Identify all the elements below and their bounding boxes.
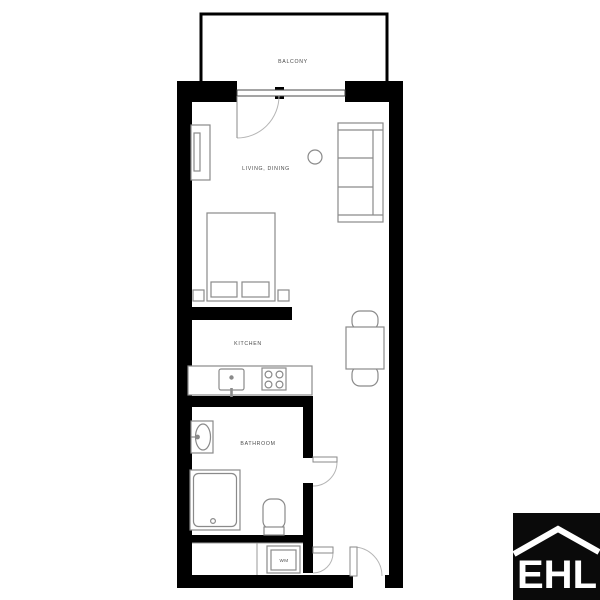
plant-circle [308,150,322,164]
wall-hall-left [303,543,313,573]
floor-plan-page: BALCONY LIVING, DINING KITCHEN BATHROOM … [0,0,600,600]
bath-sink-tap-dot [196,435,200,439]
furniture [188,123,384,573]
sink-dot [230,376,233,379]
wall-bathroom-right-upper [303,396,313,458]
label-kitchen: KITCHEN [234,341,262,347]
wall-bathroom-right-lower [303,483,313,535]
kitchen-counter [188,366,312,395]
wall-bottom-left [177,575,353,588]
wall-bathroom-bottom [180,535,313,543]
bathroom-door-arc [313,462,337,486]
label-balcony: BALCONY [278,59,308,65]
floor-plan-svg: BALCONY LIVING, DINING KITCHEN BATHROOM … [0,0,600,600]
bed [207,213,275,301]
balcony-window [237,90,345,96]
ehl-logo: EHL [513,513,600,600]
label-bathroom: BATHROOM [240,441,275,447]
wm-door-arc [313,553,333,573]
wall-kitchen-divider [180,307,292,320]
logo-text: EHL [517,553,597,597]
balcony-wall [201,14,387,82]
wm-door-leaf [313,547,333,553]
wall-top-left [177,81,237,102]
balcony-door-arc [237,96,279,138]
wall-right [389,81,403,588]
toilet-cistern [264,527,284,535]
nightstand-right [278,290,289,301]
wall-bottom-right [385,575,403,588]
nightstand-left [193,290,204,301]
shelf-unit [338,123,383,222]
label-wm: WM [280,558,289,563]
toilet-bowl [263,499,285,529]
dining-table [346,327,384,369]
wall-top-right [345,81,403,102]
label-living-dining: LIVING, DINING [242,166,290,172]
entrance-door-leaf [350,547,357,576]
wall-bathroom-top [180,396,313,407]
bathroom-door-leaf [313,457,337,462]
